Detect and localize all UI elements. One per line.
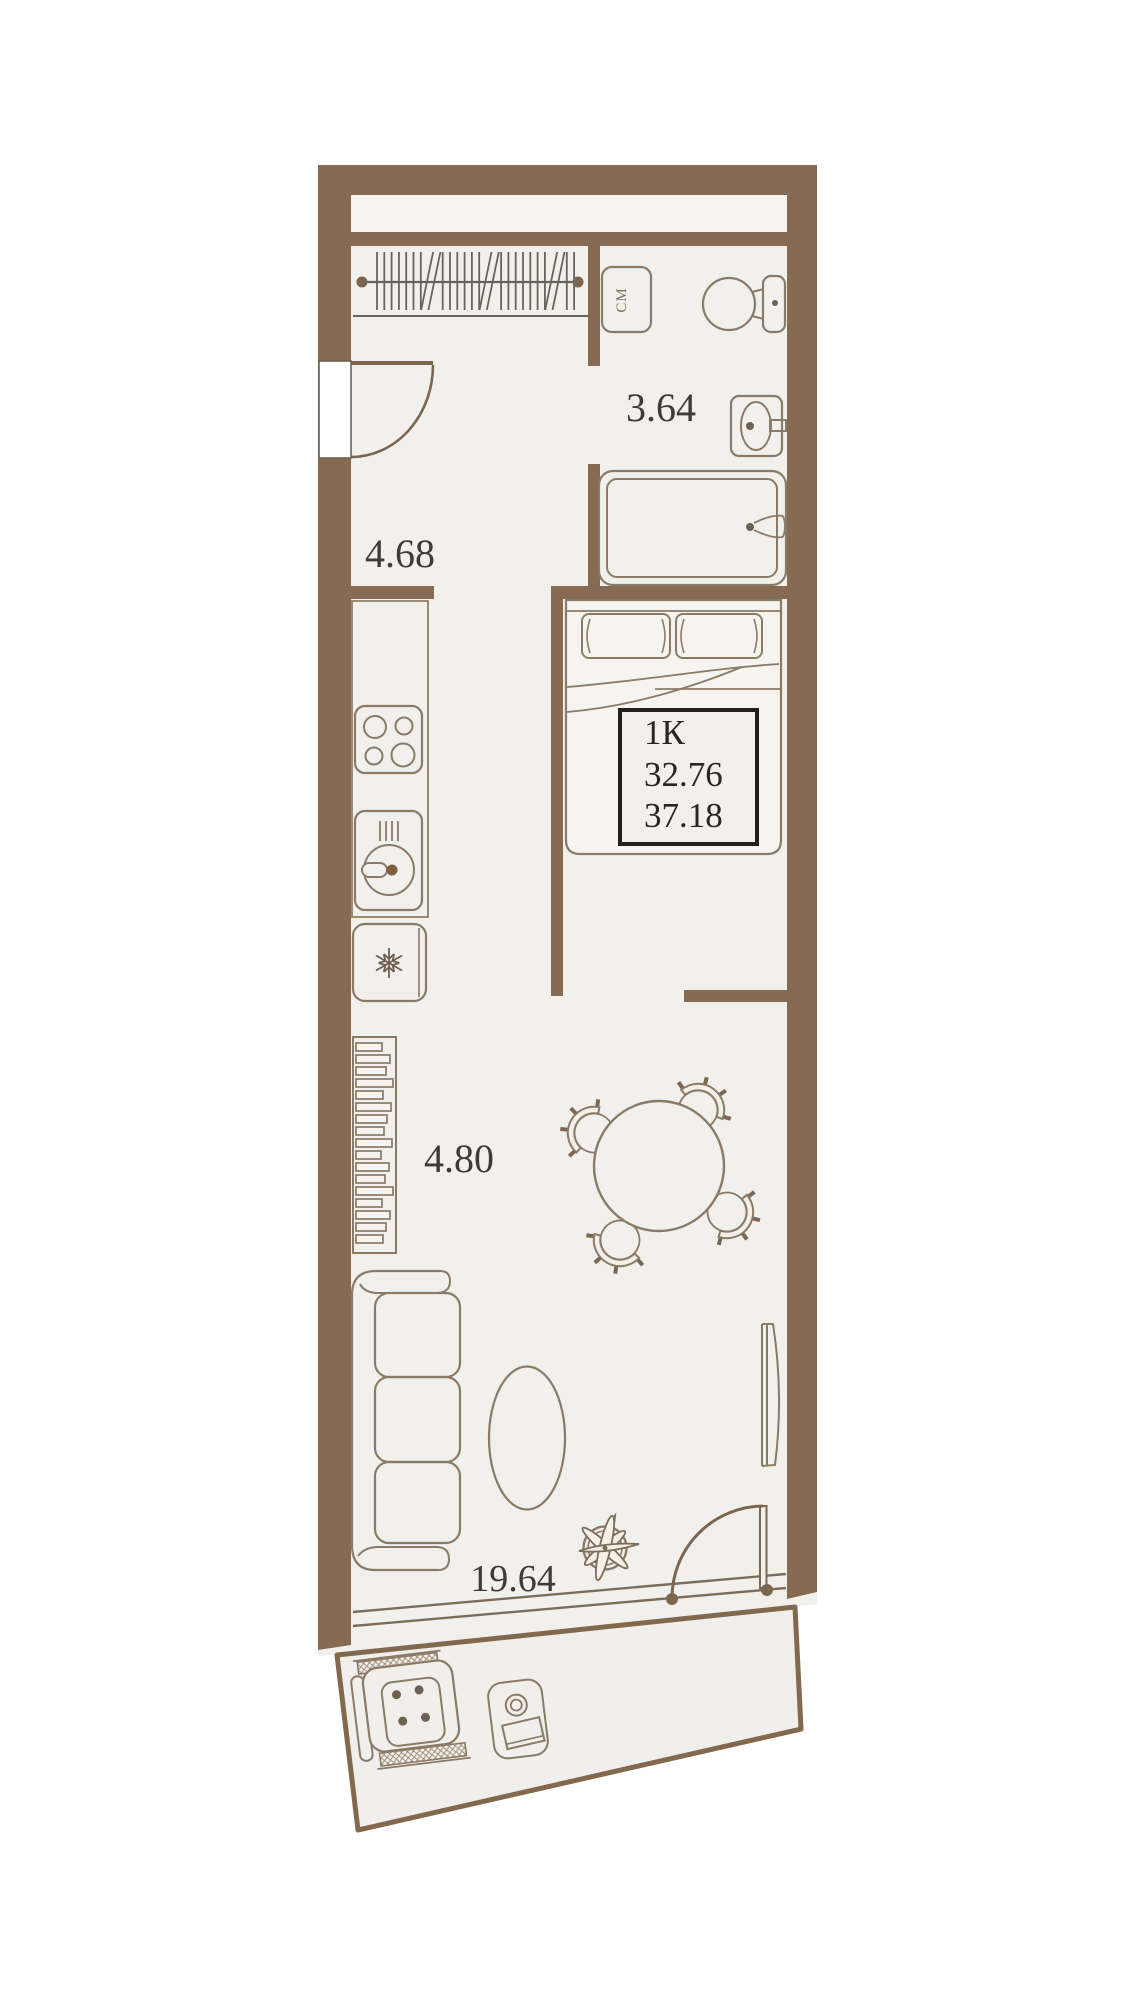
svg-text:32.76: 32.76 <box>644 755 723 794</box>
svg-text:4.80: 4.80 <box>424 1136 494 1181</box>
svg-text:4.68: 4.68 <box>365 531 435 576</box>
svg-text:3.64: 3.64 <box>626 385 696 430</box>
svg-text:19.64: 19.64 <box>470 1558 556 1600</box>
svg-text:1К: 1К <box>644 713 686 752</box>
svg-text:СМ: СМ <box>614 287 630 312</box>
svg-text:37.18: 37.18 <box>644 796 723 835</box>
